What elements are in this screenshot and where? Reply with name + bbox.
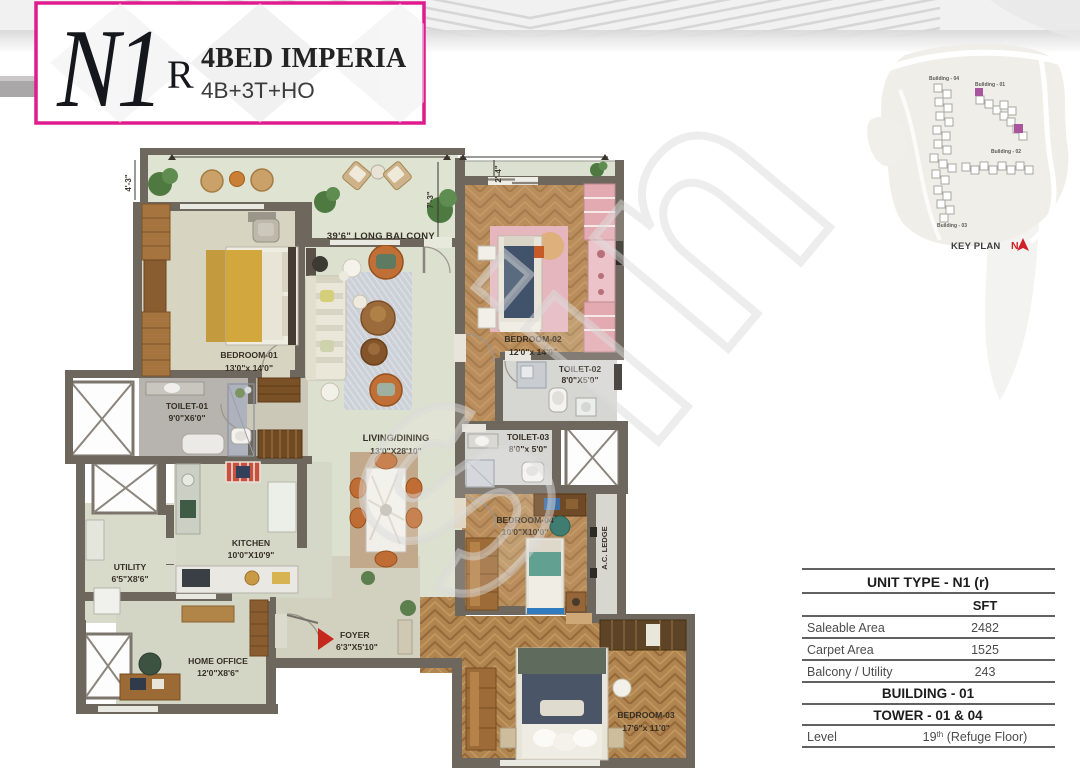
- svg-text:Building - 03: Building - 03: [937, 223, 967, 229]
- svg-text:Saleable Area: Saleable Area: [807, 621, 885, 635]
- svg-text:243: 243: [975, 665, 996, 679]
- svg-text:Level: Level: [807, 730, 837, 744]
- svg-text:1525: 1525: [971, 643, 999, 657]
- svg-text:UTILITY: UTILITY: [114, 562, 147, 572]
- svg-text:N1: N1: [56, 7, 160, 130]
- svg-text:9'0"X6'0": 9'0"X6'0": [168, 413, 205, 423]
- svg-text:39'6" LONG BALCONY: 39'6" LONG BALCONY: [327, 230, 436, 241]
- svg-text:6'5"X8'6": 6'5"X8'6": [111, 574, 148, 584]
- svg-text:2482: 2482: [971, 621, 999, 635]
- svg-text:KITCHEN: KITCHEN: [232, 538, 270, 548]
- svg-text:HOME OFFICE: HOME OFFICE: [188, 656, 248, 666]
- svg-text:4'-3": 4'-3": [124, 174, 133, 191]
- svg-text:BUILDING - 01: BUILDING - 01: [882, 686, 975, 701]
- svg-text:Carpet Area: Carpet Area: [807, 643, 874, 657]
- svg-text:4BED IMPERIA: 4BED IMPERIA: [201, 43, 407, 74]
- svg-text:12'0"X8'6": 12'0"X8'6": [197, 668, 239, 678]
- svg-text:13'0"x 14'0": 13'0"x 14'0": [225, 363, 273, 373]
- svg-text:BEDROOM-01: BEDROOM-01: [220, 350, 278, 360]
- svg-text:Building - 02: Building - 02: [991, 149, 1021, 155]
- svg-text:17'6"x 11'0": 17'6"x 11'0": [622, 723, 670, 733]
- svg-text:BEDROOM-03: BEDROOM-03: [617, 710, 675, 720]
- svg-text:6'3"X5'10": 6'3"X5'10": [336, 642, 378, 652]
- svg-text:Balcony / Utility: Balcony / Utility: [807, 665, 893, 679]
- svg-text:TOWER - 01 & 04: TOWER - 01 & 04: [873, 708, 983, 723]
- svg-text:10'0"X10'9": 10'0"X10'9": [228, 550, 275, 560]
- svg-text:Building - 01: Building - 01: [975, 82, 1005, 88]
- svg-text:UNIT TYPE - N1 (r): UNIT TYPE - N1 (r): [867, 574, 989, 590]
- svg-text:7'-3": 7'-3": [426, 191, 435, 208]
- svg-text:SFT: SFT: [973, 598, 998, 613]
- svg-text:TOILET-01: TOILET-01: [166, 401, 209, 411]
- svg-text:4B+3T+HO: 4B+3T+HO: [201, 78, 315, 103]
- svg-text:R: R: [167, 52, 194, 97]
- svg-text:Building - 04: Building - 04: [929, 76, 959, 82]
- svg-text:FOYER: FOYER: [340, 630, 370, 640]
- svg-text:KEY PLAN: KEY PLAN: [951, 241, 1000, 252]
